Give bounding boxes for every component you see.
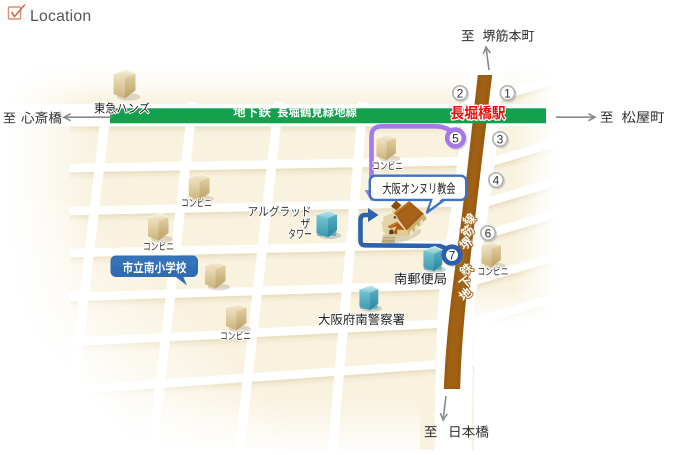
svg-text:5: 5 <box>452 131 459 145</box>
svg-text:Location: Location <box>30 8 91 25</box>
svg-text:3: 3 <box>497 132 504 146</box>
svg-text:1: 1 <box>504 86 511 100</box>
svg-text:6: 6 <box>485 226 492 240</box>
svg-text:7: 7 <box>449 248 456 262</box>
svg-text:2: 2 <box>457 86 464 100</box>
svg-text:4: 4 <box>493 173 500 187</box>
